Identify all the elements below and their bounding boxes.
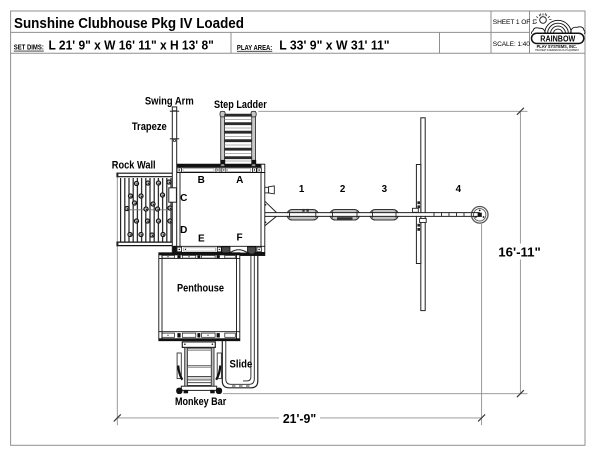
svg-text:Trapeze: Trapeze bbox=[132, 121, 167, 133]
svg-text:16'-11": 16'-11" bbox=[498, 244, 541, 259]
svg-text:Step Ladder: Step Ladder bbox=[214, 99, 267, 111]
svg-text:Sunshine Clubhouse Pkg IV Load: Sunshine Clubhouse Pkg IV Loaded bbox=[14, 16, 244, 32]
svg-text:21'-9": 21'-9" bbox=[283, 411, 316, 426]
svg-text:4: 4 bbox=[456, 184, 462, 195]
svg-text:F: F bbox=[236, 233, 242, 244]
svg-text:L 33' 9" x W 31' 11": L 33' 9" x W 31' 11" bbox=[279, 37, 389, 52]
svg-text:PLAY AREA:: PLAY AREA: bbox=[237, 43, 272, 52]
svg-text:B: B bbox=[198, 175, 205, 186]
svg-text:PLAY SYSTEMS, INC.: PLAY SYSTEMS, INC. bbox=[537, 44, 577, 49]
svg-text:E: E bbox=[198, 233, 205, 244]
svg-text:2: 2 bbox=[340, 184, 346, 195]
svg-text:Slide: Slide bbox=[230, 359, 253, 371]
svg-text:L 21' 9" x W 16' 11" x H 13' 8: L 21' 9" x W 16' 11" x H 13' 8" bbox=[49, 37, 214, 52]
svg-text:SET DIMS:: SET DIMS: bbox=[14, 43, 44, 52]
svg-text:THE FINEST IN RESIDENTIAL PLAY: THE FINEST IN RESIDENTIAL PLAY EQUIPMENT bbox=[535, 49, 579, 52]
svg-text:Swing Arm: Swing Arm bbox=[145, 95, 194, 107]
svg-text:Rock Wall: Rock Wall bbox=[112, 159, 156, 171]
svg-text:SHEET 1 OF 1: SHEET 1 OF 1 bbox=[493, 19, 536, 26]
svg-text:Monkey Bar: Monkey Bar bbox=[175, 396, 227, 408]
svg-text:C: C bbox=[180, 193, 187, 204]
svg-text:SCALE: 1:40: SCALE: 1:40 bbox=[493, 41, 530, 48]
svg-text:A: A bbox=[236, 175, 243, 186]
svg-text:3: 3 bbox=[382, 184, 388, 195]
svg-text:D: D bbox=[180, 225, 187, 236]
svg-text:1: 1 bbox=[299, 184, 305, 195]
svg-text:RAINBOW: RAINBOW bbox=[540, 34, 575, 43]
svg-text:Penthouse: Penthouse bbox=[177, 283, 224, 295]
